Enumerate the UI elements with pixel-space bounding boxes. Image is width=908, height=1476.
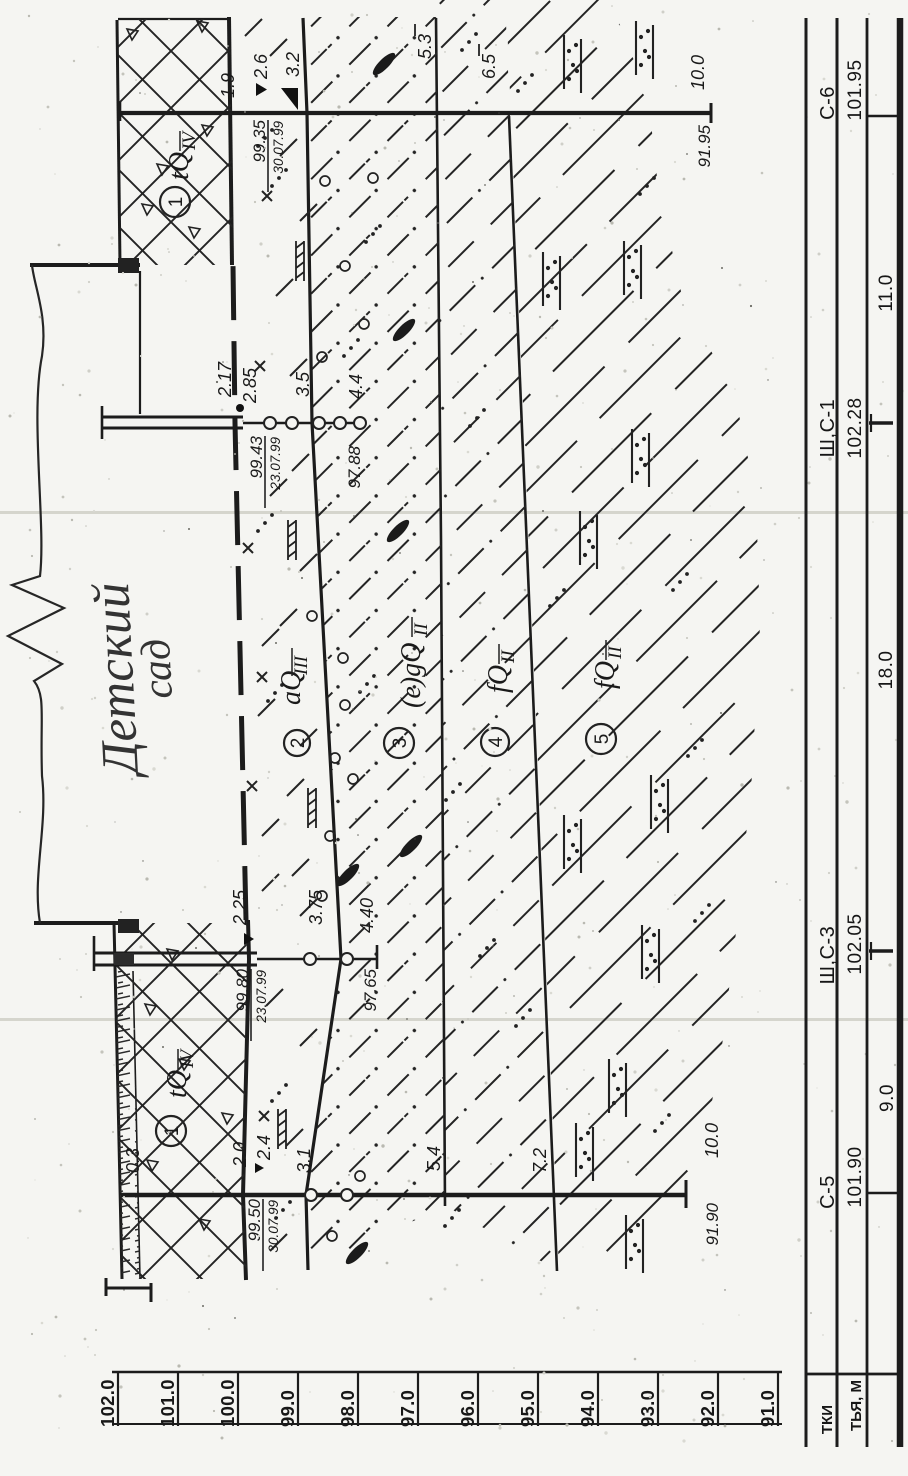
svg-text:tQ: tQ [164,152,195,180]
svg-text:2.85: 2.85 [240,367,260,404]
svg-text:97.65: 97.65 [361,968,380,1011]
svg-text:99.50: 99.50 [245,1198,264,1241]
svg-text:23.07.99: 23.07.99 [254,970,269,1024]
svg-text:IV: IV [179,130,200,151]
svg-text:98.0: 98.0 [337,1390,358,1427]
svg-text:II: II [498,649,519,664]
svg-text:3.2: 3.2 [283,52,303,77]
svg-text:II: II [411,622,432,637]
svg-text:fQ: fQ [483,665,514,693]
svg-text:91.90: 91.90 [703,1202,722,1245]
svg-text:94.0: 94.0 [577,1390,598,1427]
svg-text:tQ: tQ [162,1070,193,1098]
svg-text:2.17: 2.17 [215,361,235,398]
svg-text:2.25: 2.25 [230,889,250,926]
svg-text:1: 1 [162,1126,183,1137]
svg-text:101.0: 101.0 [157,1379,178,1427]
svg-text:30.07.99: 30.07.99 [271,121,286,174]
svg-text:9.0: 9.0 [877,1084,898,1112]
svg-text:93.0: 93.0 [637,1390,658,1427]
svg-text:С-6: С-6 [817,86,839,120]
svg-text:100.0: 100.0 [217,1379,238,1427]
svg-text:Ш,С-3: Ш,С-3 [817,926,839,985]
svg-text:сад: сад [133,638,182,700]
svg-text:3.75: 3.75 [306,889,326,925]
svg-text:2: 2 [288,738,309,749]
svg-text:1: 1 [166,197,187,208]
svg-text:4.40: 4.40 [357,898,377,933]
svg-text:99.43: 99.43 [247,435,266,478]
svg-text:2.6: 2.6 [251,53,271,80]
svg-text:92.0: 92.0 [697,1390,718,1427]
svg-text:1.9: 1.9 [218,73,238,98]
svg-text:99.35: 99.35 [250,119,269,162]
svg-text:91.0: 91.0 [757,1390,778,1427]
svg-text:101.95: 101.95 [845,59,866,120]
svg-text:10.0: 10.0 [702,1123,722,1158]
svg-text:91.95: 91.95 [695,124,714,167]
svg-text:95.0: 95.0 [517,1390,538,1427]
svg-text:96.0: 96.0 [457,1390,478,1427]
svg-text:4: 4 [486,736,507,747]
svg-text:99.80: 99.80 [233,968,252,1011]
svg-text:2.4: 2.4 [254,1135,274,1161]
svg-text:97.0: 97.0 [397,1390,418,1427]
svg-text:6.5: 6.5 [479,53,499,79]
svg-text:11.0: 11.0 [876,274,897,312]
svg-text:IV: IV [177,1048,198,1069]
svg-text:ТКИ: ТКИ [819,1405,836,1434]
svg-text:III: III [291,654,312,676]
svg-text:102.05: 102.05 [845,913,866,974]
svg-text:10.0: 10.0 [688,55,708,90]
svg-text:fQ: fQ [590,661,621,689]
svg-text:7.2: 7.2 [530,1148,550,1173]
svg-text:102.0: 102.0 [97,1379,118,1427]
svg-text:97.88: 97.88 [345,445,364,488]
svg-text:4.4: 4.4 [346,374,366,399]
svg-text:5: 5 [592,734,613,745]
svg-text:II: II [605,645,626,660]
svg-text:5.3: 5.3 [415,34,435,59]
svg-text:3.1: 3.1 [294,1148,314,1173]
svg-text:3.5: 3.5 [293,371,313,397]
svg-text:0.3: 0.3 [123,1148,143,1173]
svg-text:23.07.99: 23.07.99 [268,437,283,491]
svg-text:5.4: 5.4 [424,1146,444,1171]
svg-text:С-5: С-5 [817,1175,839,1209]
svg-text:30.07.99: 30.07.99 [266,1200,281,1253]
svg-text:3: 3 [390,738,411,749]
svg-text:101.90: 101.90 [845,1146,866,1207]
svg-text:18.0: 18.0 [876,651,897,690]
svg-text:ТЬЯ, М: ТЬЯ, М [848,1380,865,1431]
svg-text:102.28: 102.28 [845,397,866,458]
svg-text:Ш,С-1: Ш,С-1 [817,399,839,458]
svg-text:99.0: 99.0 [277,1390,298,1427]
